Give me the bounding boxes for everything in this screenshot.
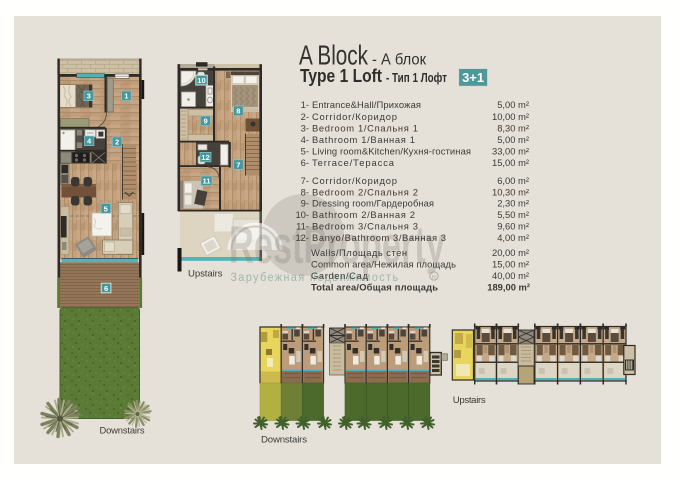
svg-text:2-: 2-: [301, 111, 309, 122]
svg-text:- Тип 1 Лофт: - Тип 1 Лофт: [386, 70, 447, 85]
svg-text:7: 7: [236, 161, 240, 170]
svg-text:R: R: [432, 275, 437, 281]
svg-text:Downstairs: Downstairs: [100, 424, 145, 435]
svg-text:2,30 m²: 2,30 m²: [497, 198, 529, 209]
svg-text:9: 9: [203, 117, 207, 126]
svg-text:Corridor/Коридор: Corridor/Коридор: [312, 175, 397, 186]
svg-text:Terrace/Терасса: Terrace/Терасса: [312, 157, 395, 168]
svg-text:3+1: 3+1: [462, 70, 484, 85]
svg-text:3-: 3-: [301, 122, 309, 133]
svg-text:Corridor/Коридор: Corridor/Коридор: [312, 111, 397, 122]
svg-text:5-: 5-: [301, 146, 309, 157]
svg-text:9,60 m²: 9,60 m²: [497, 221, 529, 232]
svg-text:4-: 4-: [301, 134, 309, 145]
svg-text:Bathroom 1/Ванная 1: Bathroom 1/Ванная 1: [312, 134, 415, 145]
svg-text:40,00 m²: 40,00 m²: [492, 270, 529, 281]
svg-text:20,00 m²: 20,00 m²: [492, 247, 529, 258]
svg-text:Banyo/Bathroom 3/Ванная 3: Banyo/Bathroom 3/Ванная 3: [312, 232, 446, 243]
svg-text:10,00 m²: 10,00 m²: [492, 111, 529, 122]
svg-text:11: 11: [202, 177, 211, 186]
svg-text:Walls/Площадь стен: Walls/Площадь стен: [311, 247, 407, 258]
svg-text:33,00 m²: 33,00 m²: [492, 146, 529, 157]
svg-text:10-: 10-: [295, 209, 309, 220]
svg-text:11-: 11-: [296, 221, 309, 232]
svg-text:7-: 7-: [301, 175, 309, 186]
svg-text:15,00 m²: 15,00 m²: [492, 157, 529, 168]
svg-text:189,00 m²: 189,00 m²: [487, 281, 530, 292]
svg-text:10: 10: [197, 76, 205, 85]
svg-text:Type 1 Loft: Type 1 Loft: [300, 65, 382, 86]
svg-text:2: 2: [115, 138, 119, 147]
svg-text:5,50 m²: 5,50 m²: [497, 209, 529, 220]
svg-text:8,30 m²: 8,30 m²: [497, 122, 529, 133]
svg-text:Bathroom 2/Ванная 2: Bathroom 2/Ванная 2: [312, 209, 415, 220]
svg-text:6-: 6-: [301, 157, 309, 168]
svg-text:10,30 m²: 10,30 m²: [492, 186, 529, 197]
svg-text:8: 8: [236, 107, 240, 116]
svg-text:5,00 m²: 5,00 m²: [497, 99, 529, 110]
svg-text:15,00 m²: 15,00 m²: [492, 258, 529, 269]
svg-text:Living room&Kitchen/Кухня-гост: Living room&Kitchen/Кухня-гостиная: [312, 146, 471, 157]
svg-text:Garden/Сад: Garden/Сад: [311, 270, 369, 281]
svg-text:6,00 m²: 6,00 m²: [497, 175, 529, 186]
svg-text:4,00 m²: 4,00 m²: [497, 232, 529, 243]
svg-text:Entrance&Hall/Прихожая: Entrance&Hall/Прихожая: [312, 99, 421, 110]
svg-text:6: 6: [104, 284, 108, 293]
svg-text:12: 12: [201, 153, 209, 162]
svg-text:Dressing room/Гардеробная: Dressing room/Гардеробная: [312, 198, 434, 209]
svg-text:9-: 9-: [301, 198, 309, 209]
svg-text:Bedroom 1/Спальня 1: Bedroom 1/Спальня 1: [312, 122, 418, 133]
svg-text:Upstairs: Upstairs: [453, 395, 486, 406]
svg-text:Downstairs: Downstairs: [261, 435, 307, 446]
svg-text:Upstairs: Upstairs: [188, 269, 223, 280]
svg-text:Total area/Общая площадь: Total area/Общая площадь: [311, 281, 438, 292]
svg-text:8-: 8-: [301, 186, 309, 197]
svg-text:3: 3: [87, 92, 91, 101]
svg-text:5,00 m²: 5,00 m²: [497, 134, 529, 145]
svg-text:Bedroom 2/Спальня 2: Bedroom 2/Спальня 2: [312, 186, 418, 197]
svg-text:Common area/Нежилая площадь: Common area/Нежилая площадь: [311, 258, 456, 269]
svg-text:12-: 12-: [295, 232, 309, 243]
svg-text:Bedroom 3/Спальня 3: Bedroom 3/Спальня 3: [312, 221, 418, 232]
svg-text:1-: 1-: [301, 99, 309, 110]
